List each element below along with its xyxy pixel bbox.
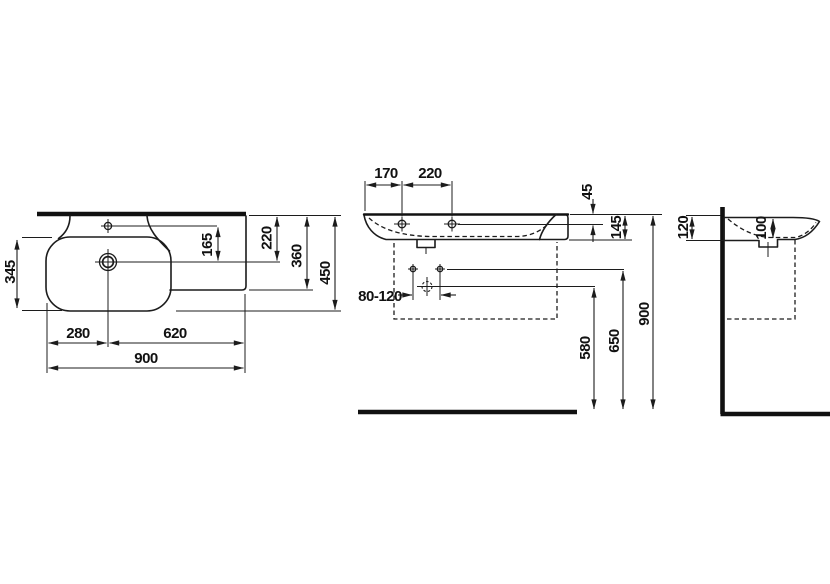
faucet-hole-symbol-right	[444, 217, 460, 232]
top-view: 345 165 220 360 450 280 620 900	[2, 214, 341, 373]
dim-label-shelf-depth: 360	[289, 244, 306, 268]
faucet-hole-symbol	[101, 219, 115, 233]
installation-zone-dashed	[394, 242, 557, 319]
bowl-hidden-edge-front	[369, 218, 548, 237]
dim-label-tap-hole-offset: 170	[374, 165, 398, 182]
front-view: 170 220 45 145 80-120 580 650 900	[358, 165, 662, 412]
fixing-bolt-right	[435, 264, 445, 274]
tap-deck-left-edge	[59, 216, 71, 239]
dim-label-rim-height: 900	[636, 302, 653, 326]
dim-label-bowl-center-offset: 280	[66, 325, 90, 342]
drawing-canvas: 345 165 220 360 450 280 620 900	[0, 0, 830, 584]
dim-label-shelf-span: 620	[163, 325, 187, 342]
side-view: 120 100	[675, 207, 830, 414]
dim-label-tap-to-drain: 165	[199, 233, 216, 257]
dim-label-fixing-bolt-height: 650	[606, 329, 623, 353]
dim-label-drain-outlet-height: 580	[577, 336, 594, 360]
dim-label-overall-width: 900	[134, 350, 158, 367]
drain-symbol	[95, 249, 121, 275]
dim-label-fixing-bolt-spacing: 80-120	[358, 288, 402, 305]
basin-outline-side	[724, 218, 820, 248]
technical-drawing: 345 165 220 360 450 280 620 900	[0, 0, 830, 584]
bowl-hidden-edge-side	[728, 219, 816, 238]
trap-stub-front	[417, 240, 435, 248]
dim-label-rim-edge-height: 145	[608, 216, 625, 240]
faucet-hole-symbol-left	[394, 217, 410, 232]
dim-label-shelf-edge-thickness: 45	[579, 184, 596, 200]
dim-label-bowl-inner-depth: 100	[753, 216, 770, 240]
basin-outline-front	[364, 215, 568, 240]
dim-label-drain-depth: 220	[259, 226, 276, 250]
dim-label-back-rim-height: 120	[675, 216, 692, 240]
dim-label-bowl-depth: 345	[2, 260, 19, 284]
drain-zone-dashed	[724, 240, 795, 319]
dim-label-overall-depth: 450	[317, 261, 334, 285]
fixing-bolt-left	[408, 264, 418, 274]
waste-outlet-symbol	[417, 277, 437, 296]
bowl-shelf-separation	[540, 215, 557, 240]
dim-label-tap-hole-spacing: 220	[418, 165, 442, 182]
